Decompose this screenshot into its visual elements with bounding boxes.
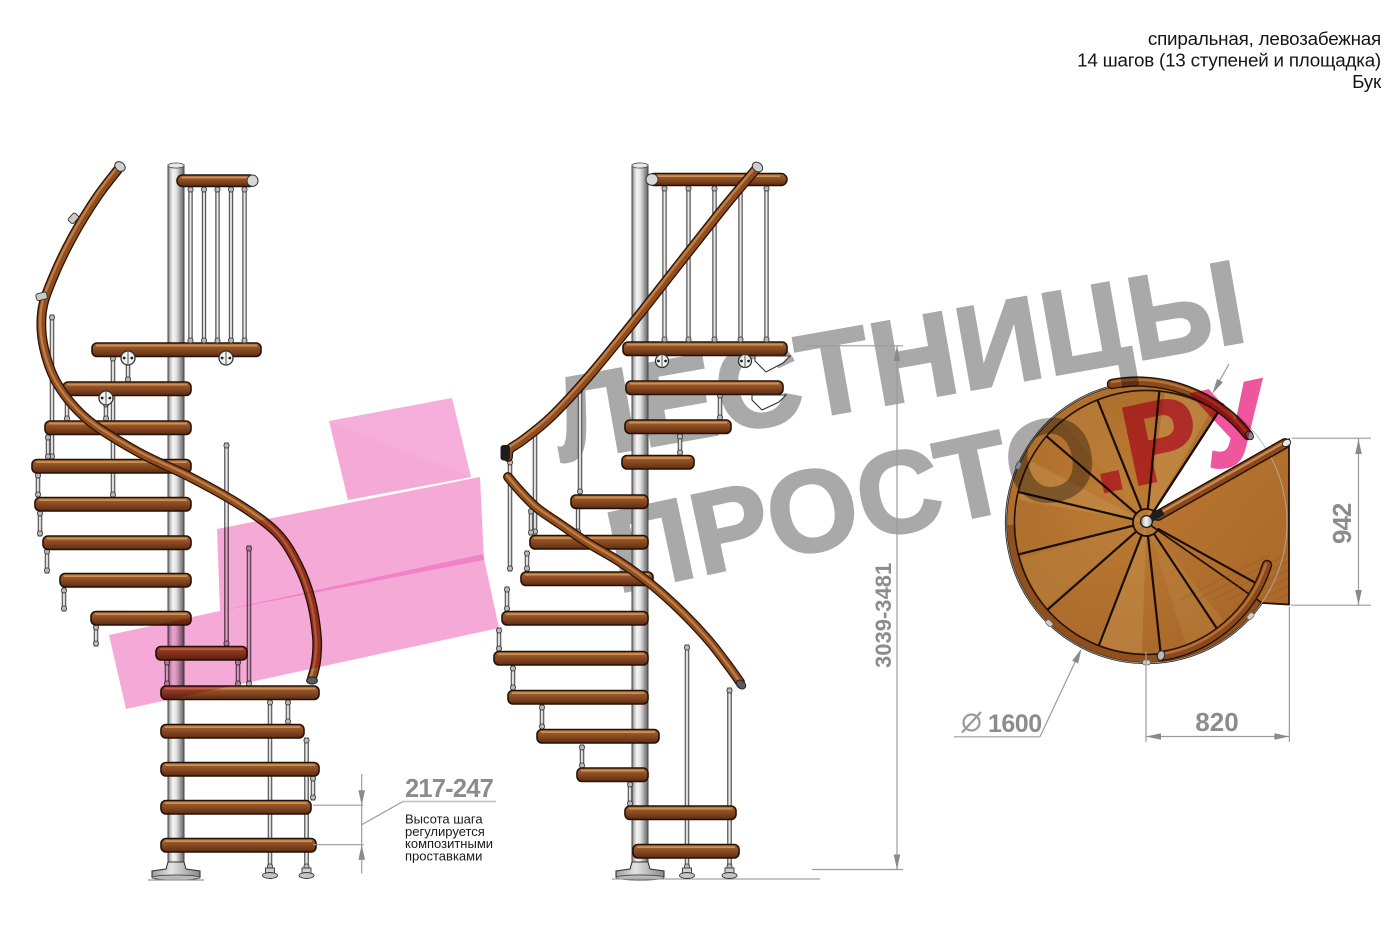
svg-text:3039-3481: 3039-3481 [871, 563, 896, 668]
svg-text:спиральная, левозабежная: спиральная, левозабежная [1148, 28, 1381, 49]
svg-text:Бук: Бук [1352, 71, 1382, 92]
svg-text:942: 942 [1327, 503, 1357, 544]
svg-text:1600: 1600 [988, 710, 1042, 738]
svg-text:217-247: 217-247 [405, 775, 494, 803]
svg-text:14 шагов (13 ступеней и площад: 14 шагов (13 ступеней и площадка) [1077, 50, 1381, 71]
svg-text:проставками: проставками [405, 848, 482, 863]
svg-text:820: 820 [1195, 707, 1238, 737]
